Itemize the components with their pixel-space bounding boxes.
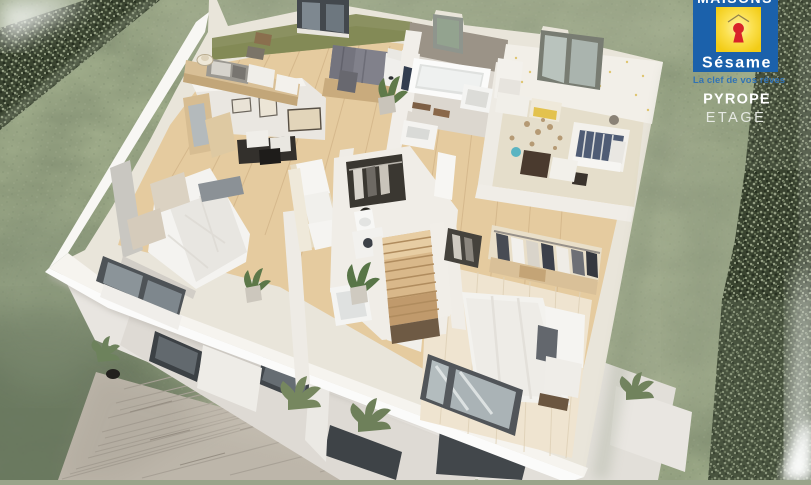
svg-text:ETAGE: ETAGE: [706, 110, 767, 126]
svg-text:PYROPE: PYROPE: [703, 92, 771, 108]
svg-text:La clef de vos rêves: La clef de vos rêves: [693, 75, 785, 86]
svg-text:Sésame: Sésame: [702, 55, 772, 72]
svg-text:MAISONS: MAISONS: [697, 0, 773, 6]
